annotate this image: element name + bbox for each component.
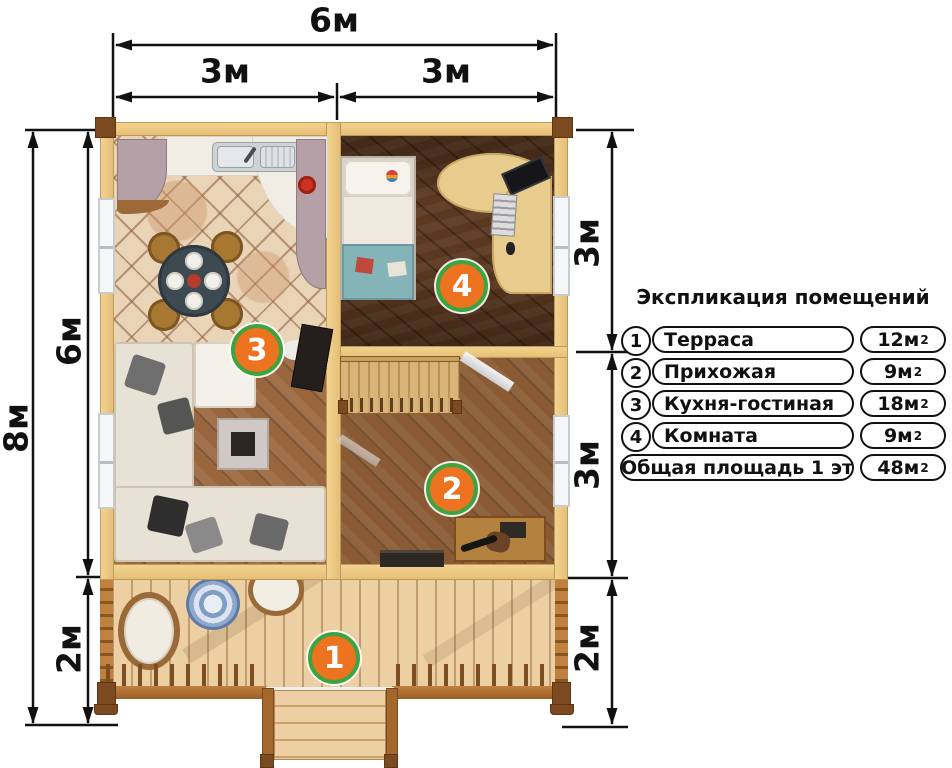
legend-name-1: Терраса — [652, 326, 854, 353]
floor-plan-page: 6м 3м 3м 8м 6м 2м 3м 3м 2м — [0, 0, 952, 768]
legend-name-3: Кухня-гостиная — [652, 390, 854, 417]
legend-num-1: 1 — [621, 326, 651, 356]
legend-num-3: 3 — [621, 390, 651, 420]
legend-name-2: Прихожая — [652, 358, 854, 385]
legend-title: Экспликация помещений — [636, 285, 929, 309]
legend-num-4: 4 — [621, 422, 651, 452]
legend-total-name: Общая площадь 1 эт — [620, 454, 854, 481]
area-value: 9м — [884, 425, 913, 447]
legend-name-4: Комната — [652, 422, 854, 449]
area-value: 12м — [877, 329, 919, 351]
legend-area-1: 12м2 — [860, 326, 946, 353]
legend-total-area: 48м2 — [860, 454, 946, 481]
area-value: 9м — [884, 361, 913, 383]
area-value: 18м — [877, 393, 919, 415]
legend-area-3: 18м2 — [860, 390, 946, 417]
legend-area-2: 9м2 — [860, 358, 946, 385]
legend-num-2: 2 — [621, 358, 651, 388]
area-value: 48м — [877, 457, 919, 479]
legend: Экспликация помещений 1 Терраса 12м2 2 П… — [0, 0, 952, 768]
legend-area-4: 9м2 — [860, 422, 946, 449]
